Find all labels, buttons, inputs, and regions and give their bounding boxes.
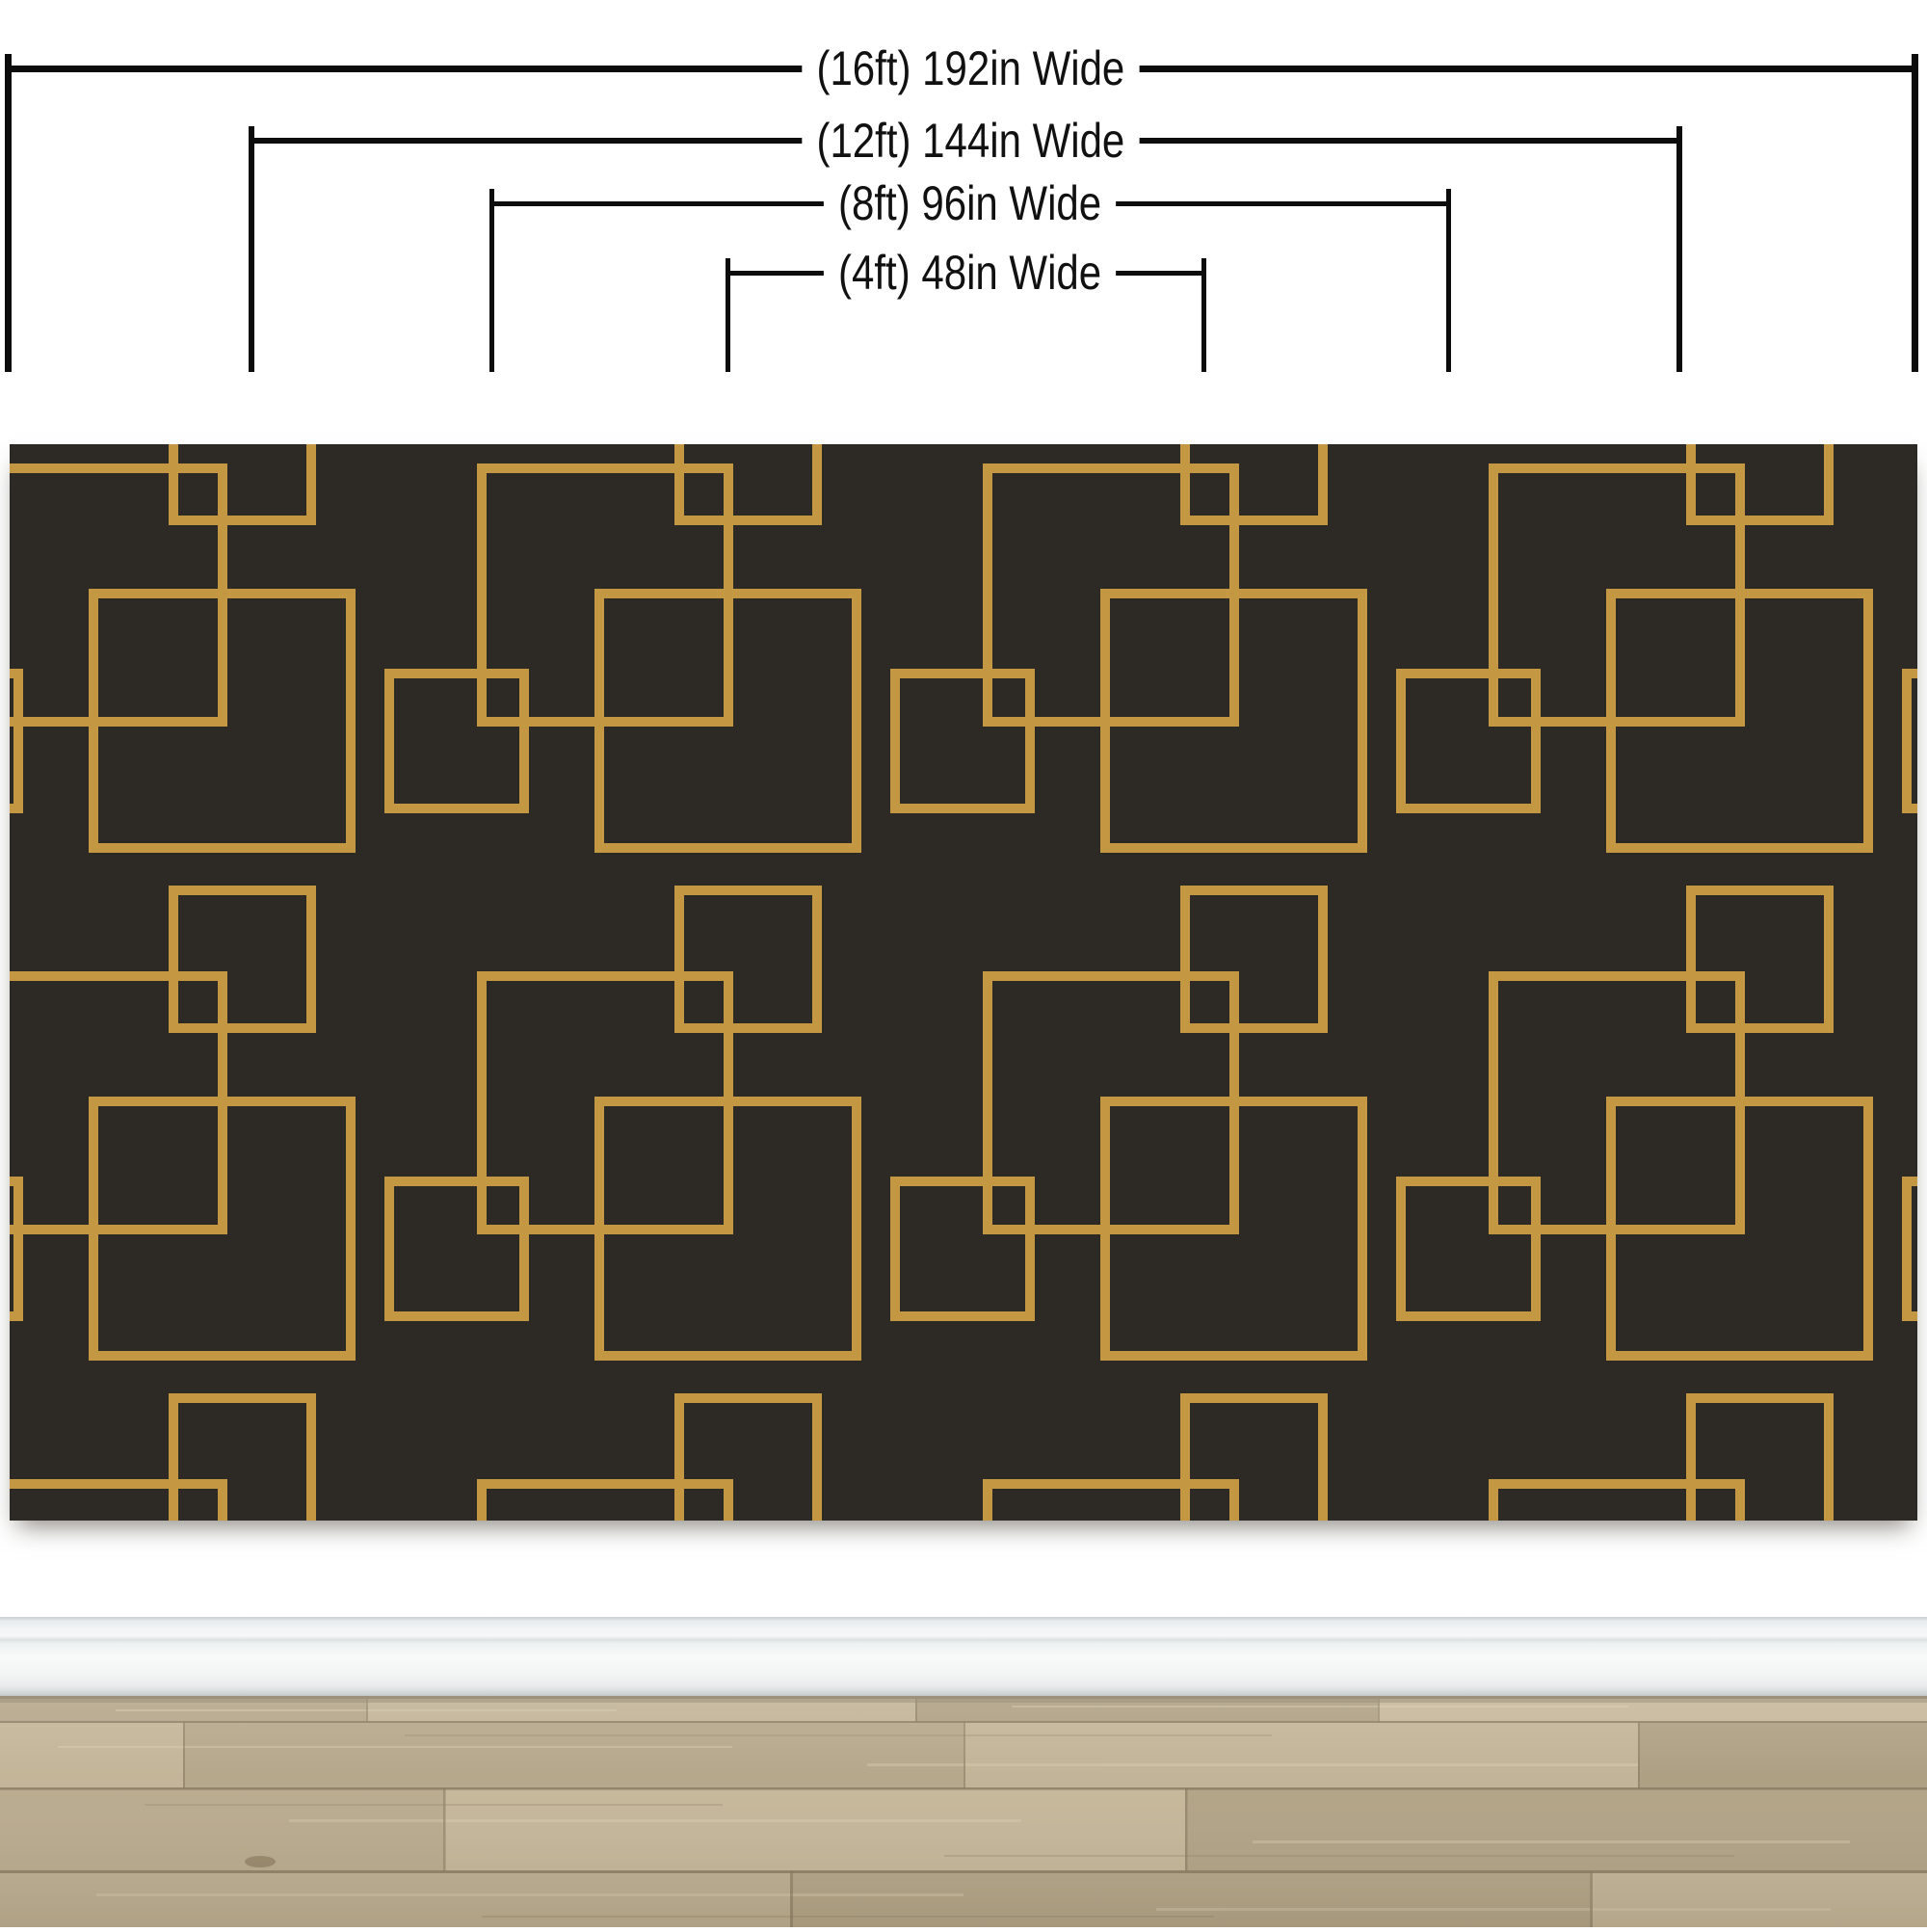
wood-floor: [0, 1696, 1927, 1927]
size-label-4ft: (4ft) 48in Wide: [633, 244, 1307, 302]
bracket-16ft-right-end: [1912, 54, 1918, 372]
size-label-8ft: (8ft) 96in Wide: [633, 174, 1307, 232]
bracket-8ft-left-end: [489, 189, 494, 372]
wallpaper-mural-panel: [10, 444, 1917, 1521]
bracket-12ft-left-end: [249, 126, 254, 372]
bracket-8ft-right-end: [1446, 189, 1451, 372]
gold-squares-pattern: [10, 444, 1917, 1521]
size-label-12ft: (12ft) 144in Wide: [633, 112, 1307, 170]
bracket-12ft-right-end: [1676, 126, 1682, 372]
size-label-16ft: (16ft) 192in Wide: [633, 40, 1307, 97]
baseboard: [0, 1617, 1927, 1696]
mockup-scene: { "measurement_guide": { "labels": [ { "…: [0, 0, 1927, 1927]
bracket-16ft-left-end: [5, 54, 12, 372]
